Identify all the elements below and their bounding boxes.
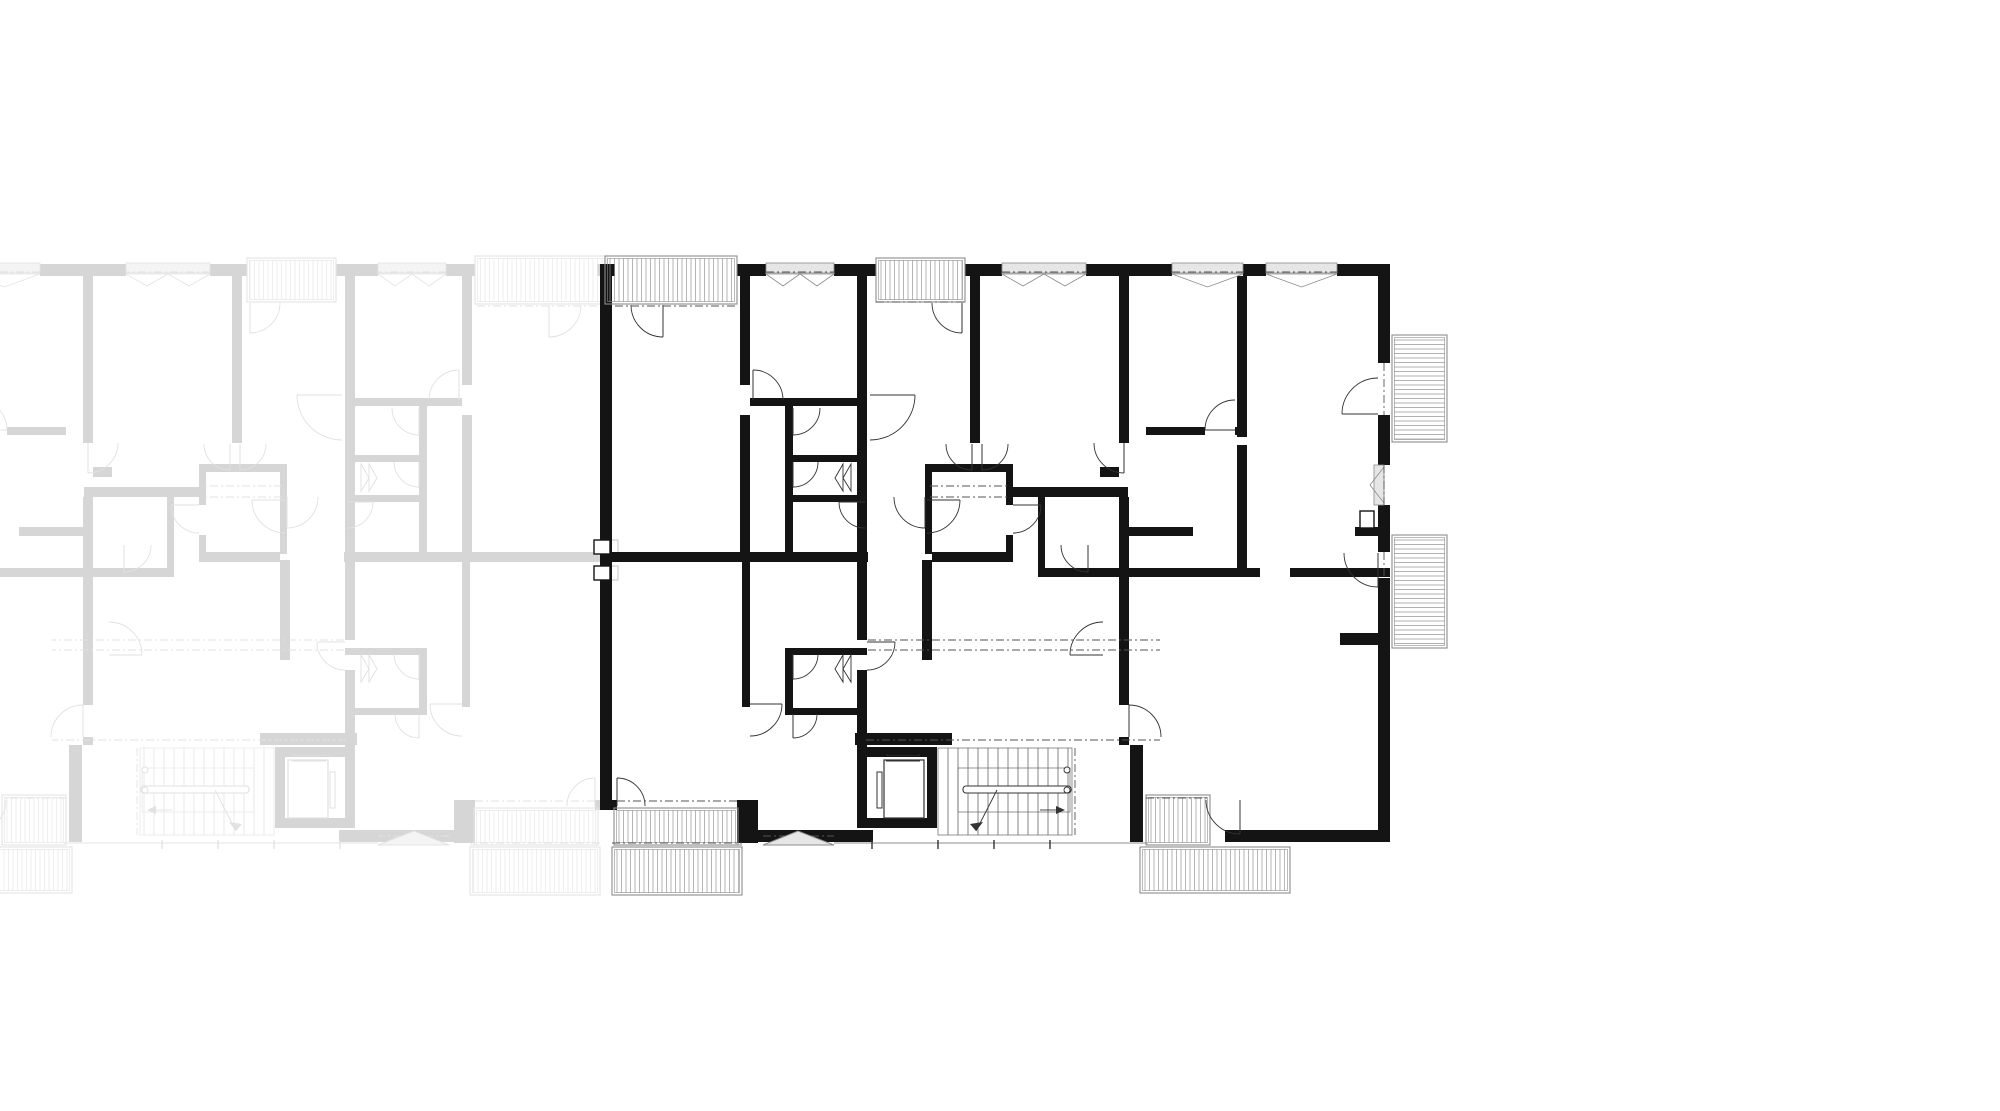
wall-segment xyxy=(866,818,937,828)
wall-segment xyxy=(345,708,427,715)
wall-segment xyxy=(737,800,758,843)
wall-segment xyxy=(740,276,750,385)
wall-segment xyxy=(84,487,202,497)
stair-handrail xyxy=(141,786,249,793)
wall-segment xyxy=(210,264,247,276)
wall-segment xyxy=(260,733,357,745)
elevator-car xyxy=(288,760,328,818)
window-sill xyxy=(766,263,834,273)
wall-segment xyxy=(1378,578,1390,842)
floor-plan-svg xyxy=(0,0,2000,1111)
handrail-post xyxy=(1064,767,1070,773)
wall-segment xyxy=(419,648,427,715)
wall-segment xyxy=(19,527,84,536)
wall-segment xyxy=(927,747,937,828)
wall-segment xyxy=(1038,497,1045,577)
wall-segment xyxy=(1006,535,1013,562)
wall-segment xyxy=(419,400,427,552)
wall-segment xyxy=(1146,427,1205,435)
wall-segment xyxy=(40,264,126,276)
wall-segment xyxy=(199,535,206,562)
wall-segment xyxy=(1010,487,1128,497)
wall-segment xyxy=(345,398,462,406)
wall-segment xyxy=(1235,427,1247,435)
wall-segment xyxy=(83,497,93,705)
handrail-post xyxy=(1064,787,1070,793)
wall-segment xyxy=(199,464,206,505)
wall-junction-detail xyxy=(594,540,610,554)
wall-segment xyxy=(970,276,980,443)
wall-segment xyxy=(275,818,346,828)
window-sill xyxy=(1374,465,1384,505)
wall-segment xyxy=(1378,264,1390,363)
wall-segment xyxy=(336,264,378,276)
window-sill xyxy=(1266,263,1337,273)
wall-segment xyxy=(1237,276,1247,437)
wall-segment xyxy=(742,562,750,707)
wall-segment xyxy=(790,495,867,502)
balcony xyxy=(1146,795,1210,845)
wall-segment xyxy=(785,648,793,715)
wall-segment xyxy=(345,495,422,502)
wall-segment xyxy=(1086,264,1172,276)
wall-segment xyxy=(232,276,242,443)
wall-segment xyxy=(1119,737,1129,745)
wall-segment xyxy=(857,276,867,562)
elevator-counterweight xyxy=(888,749,918,755)
wall-segment xyxy=(345,276,355,562)
wall-segment xyxy=(83,737,93,745)
wall-segment xyxy=(834,830,873,842)
window-sill xyxy=(1172,263,1243,273)
wall-segment xyxy=(462,415,472,552)
wall-segment xyxy=(446,264,475,276)
wall-segment xyxy=(834,264,876,276)
wall-segment xyxy=(1290,568,1390,577)
wall-segment xyxy=(855,733,952,745)
wall-segment xyxy=(1378,415,1390,465)
wall-segment xyxy=(167,497,174,577)
wall-segment xyxy=(345,670,355,828)
stair-handrail xyxy=(963,786,1071,793)
wall-segment xyxy=(345,648,427,655)
window-sill xyxy=(378,263,446,273)
wall-segment xyxy=(1130,745,1143,842)
wall-segment xyxy=(737,264,766,276)
wall-segment xyxy=(1225,830,1390,842)
wall-segment xyxy=(793,455,867,462)
wall-segment xyxy=(965,264,1002,276)
wall-segment xyxy=(199,552,280,562)
wall-segment xyxy=(339,830,378,842)
wall-segment xyxy=(922,560,932,660)
handrail-post xyxy=(142,767,148,773)
wall-segment xyxy=(1006,464,1013,505)
wall-junction-detail xyxy=(594,566,610,580)
wall-segment xyxy=(280,470,287,554)
wall-segment xyxy=(785,400,793,552)
wall-segment xyxy=(83,276,93,443)
page-root xyxy=(0,0,2000,1111)
wall-junction-detail xyxy=(1360,511,1374,528)
elevator-car xyxy=(884,760,924,818)
wall-segment xyxy=(1119,497,1129,705)
wall-segment xyxy=(605,552,868,562)
wall-segment xyxy=(462,276,472,385)
wall-segment xyxy=(280,560,290,660)
elevator-counterweight xyxy=(294,749,324,755)
wall-segment xyxy=(0,568,174,577)
wall-segment xyxy=(1340,633,1378,645)
window-sill xyxy=(0,263,40,273)
wall-segment xyxy=(199,464,287,472)
wall-segment xyxy=(740,415,750,552)
wall-segment xyxy=(932,552,1013,562)
wall-segment xyxy=(345,562,355,640)
wall-segment xyxy=(925,464,1013,472)
wall-segment xyxy=(857,562,867,640)
wall-segment xyxy=(1243,264,1266,276)
window-sill xyxy=(1002,263,1086,273)
window-sill xyxy=(126,263,210,273)
wall-segment xyxy=(857,670,867,828)
wall-segment xyxy=(1038,568,1260,577)
wall-segment xyxy=(345,455,419,462)
wall-segment xyxy=(785,708,867,715)
wall-segment xyxy=(462,562,470,707)
wall-segment xyxy=(1119,276,1129,443)
balcony xyxy=(2,795,66,845)
handrail-post xyxy=(142,787,148,793)
wall-segment xyxy=(69,745,82,842)
wall-segment xyxy=(1237,445,1247,575)
wall-segment xyxy=(750,398,867,406)
wall-segment xyxy=(344,552,607,562)
wall-segment xyxy=(785,648,867,655)
wall-segment xyxy=(925,470,932,554)
wall-segment xyxy=(275,747,285,828)
wall-segment xyxy=(1128,527,1193,536)
wall-segment xyxy=(7,427,66,435)
wall-segment xyxy=(454,800,475,843)
wall-segment xyxy=(600,264,612,810)
